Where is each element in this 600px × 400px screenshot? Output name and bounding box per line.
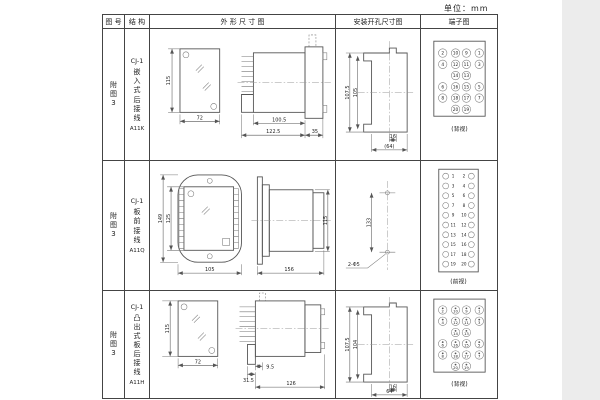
dim-label-flange-depth: 35 xyxy=(312,129,318,135)
svg-text:15: 15 xyxy=(450,242,456,247)
mount-type: 板 前 接 线 xyxy=(134,208,141,244)
svg-text:5: 5 xyxy=(478,84,481,90)
svg-text:2: 2 xyxy=(441,51,444,57)
dim-label-cutout-outer: 107.5 xyxy=(345,337,351,351)
model-code: A11H xyxy=(130,380,145,386)
svg-text:3: 3 xyxy=(478,321,481,325)
svg-text:16: 16 xyxy=(453,84,459,90)
svg-text:6: 6 xyxy=(442,343,445,347)
terminal-view-caption: (前视) xyxy=(450,278,466,286)
svg-text:10: 10 xyxy=(453,310,458,314)
page-edge-margin xyxy=(562,0,600,400)
terminal-drawing-cell: 2109141211314136161558181772019 (背视) xyxy=(421,291,498,399)
install-hole-drawing: 107.5 105 16 (64) xyxy=(336,29,420,160)
svg-text:20: 20 xyxy=(461,262,467,267)
svg-text:18: 18 xyxy=(453,355,458,359)
svg-text:20: 20 xyxy=(453,107,459,113)
model-code: A11Q xyxy=(129,248,144,254)
svg-text:2: 2 xyxy=(442,310,445,314)
svg-text:18: 18 xyxy=(453,96,459,102)
svg-text:4: 4 xyxy=(442,321,445,325)
table-row-a11q: 附 图 3 CJ-1 板 前 接 线 A11Q xyxy=(103,161,498,291)
svg-text:1: 1 xyxy=(478,310,481,314)
structure-cell: CJ-1 嵌 入 式 后 接 线 A11K xyxy=(125,29,150,161)
install-drawing-cell: 107.5 105 16 (64) xyxy=(336,29,421,161)
svg-text:19: 19 xyxy=(450,262,456,267)
dim-label-cutout-outer: 107.5 xyxy=(345,85,351,99)
outline-drawing: 115 72 9.5 xyxy=(150,291,335,398)
svg-text:11: 11 xyxy=(464,321,469,325)
svg-text:15: 15 xyxy=(464,343,469,347)
dim-label-front-width: 105 xyxy=(205,267,214,273)
model-code: A11K xyxy=(130,126,144,132)
svg-text:19: 19 xyxy=(464,107,470,113)
dim-label-inner-height: 125 xyxy=(166,214,172,223)
dim-label-tab-width: 16 xyxy=(390,134,396,140)
document-page: 单位：mm 图 号 结 构 外 形 尺 寸 图 安装开孔尺寸图 端子图 附 图 … xyxy=(0,0,600,400)
mount-type: 嵌 入 式 后 接 线 xyxy=(134,68,141,123)
svg-text:9: 9 xyxy=(465,51,468,57)
svg-text:1: 1 xyxy=(478,51,481,57)
hole-spec-label: 2-Φ5 xyxy=(348,262,360,268)
svg-text:19: 19 xyxy=(464,366,469,370)
spec-table: 图 号 结 构 外 形 尺 寸 图 安装开孔尺寸图 端子图 附 图 3 CJ-1… xyxy=(102,14,498,399)
svg-text:16: 16 xyxy=(453,343,458,347)
dim-label-hole-spacing: 133 xyxy=(367,218,373,227)
svg-text:6: 6 xyxy=(463,193,466,198)
header-outline-dims: 外 形 尺 寸 图 xyxy=(150,15,336,29)
dim-label-front-width: 72 xyxy=(197,115,203,121)
outline-drawing-cell: 115 72 9.5 xyxy=(150,291,336,399)
fig-no-cell: 附 图 3 xyxy=(103,161,125,291)
dim-label-cutout-inner: 105 xyxy=(353,88,359,97)
header-terminal-diagram: 端子图 xyxy=(421,15,498,29)
svg-text:8: 8 xyxy=(441,96,444,102)
svg-text:12: 12 xyxy=(453,321,458,325)
structure-cell: CJ-1 凸 出 式 板 后 接 线 A11H xyxy=(125,291,150,399)
svg-text:12: 12 xyxy=(461,222,467,227)
terminal-diagram: 2109141211314136161558181772019 (背视) xyxy=(421,29,497,160)
svg-text:11: 11 xyxy=(450,222,456,227)
svg-text:10: 10 xyxy=(461,213,467,218)
terminal-view-caption: (背视) xyxy=(451,125,467,133)
svg-text:17: 17 xyxy=(464,96,470,102)
install-drawing-cell: 133 2-Φ5 xyxy=(336,161,421,291)
dim-label-case-length: 100.5 xyxy=(272,117,286,123)
svg-text:4: 4 xyxy=(463,183,466,188)
outline-drawing-cell: 149 125 105 xyxy=(150,161,336,291)
terminal-diagram: 2109141211314136161558181772019 (背视) xyxy=(421,291,497,398)
svg-text:9: 9 xyxy=(452,213,455,218)
svg-text:1: 1 xyxy=(452,174,455,179)
table-row-a11k: 附 图 3 CJ-1 嵌 入 式 后 接 线 A11K 115 xyxy=(103,29,498,161)
header-fig-no: 图 号 xyxy=(103,15,125,29)
install-hole-drawing: 133 2-Φ5 xyxy=(336,161,420,290)
svg-text:4: 4 xyxy=(441,62,444,68)
header-install-holes: 安装开孔尺寸图 xyxy=(336,15,421,29)
dim-label-cutout-width: 64 xyxy=(386,389,392,395)
svg-text:14: 14 xyxy=(453,73,459,79)
dim-label-side-height: 115 xyxy=(323,216,329,225)
dim-label-flange-height: 149 xyxy=(158,214,164,223)
table-header-row: 图 号 结 构 外 形 尺 寸 图 安装开孔尺寸图 端子图 xyxy=(103,15,498,29)
svg-text:20: 20 xyxy=(453,366,458,370)
terminal-view-caption: (背视) xyxy=(451,380,467,388)
svg-text:3: 3 xyxy=(452,183,455,188)
outline-drawing: 149 125 105 xyxy=(150,161,335,290)
terminal-diagram: 1234567891011121314151617181920 (前视) xyxy=(421,161,497,290)
unit-label: 单位：mm xyxy=(444,3,489,14)
terminal-drawing-cell: 2109141211314136161558181772019 (背视) xyxy=(421,29,498,161)
relay-type: CJ-1 xyxy=(131,197,144,205)
svg-text:8: 8 xyxy=(463,203,466,208)
svg-text:16: 16 xyxy=(461,242,467,247)
dim-label-front-height: 115 xyxy=(166,76,172,85)
outline-drawing-cell: 115 72 100.5 xyxy=(150,29,336,161)
terminal-drawing-cell: 1234567891011121314151617181920 (前视) xyxy=(421,161,498,291)
svg-text:13: 13 xyxy=(464,332,469,336)
svg-text:12: 12 xyxy=(453,62,459,68)
structure-cell: CJ-1 板 前 接 线 A11Q xyxy=(125,161,150,291)
dim-label-front-height: 115 xyxy=(165,324,171,333)
outline-drawing: 115 72 100.5 xyxy=(150,29,335,160)
svg-text:3: 3 xyxy=(478,62,481,68)
relay-type: CJ-1 xyxy=(131,303,144,311)
svg-text:13: 13 xyxy=(450,232,456,237)
svg-text:14: 14 xyxy=(453,332,458,336)
dim-label-total-length: 122.5 xyxy=(266,129,280,135)
dim-label-front-width: 72 xyxy=(195,359,201,365)
svg-text:11: 11 xyxy=(464,62,470,68)
svg-text:14: 14 xyxy=(461,232,467,237)
svg-text:2: 2 xyxy=(463,174,466,179)
svg-text:7: 7 xyxy=(478,355,481,359)
svg-text:6: 6 xyxy=(441,84,444,90)
dim-label-cutout-inner: 104 xyxy=(353,340,359,349)
dim-label-side-length: 156 xyxy=(284,267,293,273)
svg-text:10: 10 xyxy=(453,51,459,57)
svg-text:8: 8 xyxy=(442,355,445,359)
fig-no-cell: 附 图 3 xyxy=(103,291,125,399)
relay-type: CJ-1 xyxy=(131,57,144,65)
table-row-a11h: 附 图 3 CJ-1 凸 出 式 板 后 接 线 A11H 115 xyxy=(103,291,498,399)
svg-text:5: 5 xyxy=(452,193,455,198)
svg-text:15: 15 xyxy=(464,84,470,90)
svg-text:18: 18 xyxy=(461,252,467,257)
install-hole-drawing: 107.5 104 16 64 xyxy=(336,291,420,398)
dim-label-cutout-width: (64) xyxy=(384,144,394,150)
dim-label-total-length: 126 xyxy=(286,381,295,387)
svg-text:5: 5 xyxy=(478,343,481,347)
fig-no-cell: 附 图 3 xyxy=(103,29,125,161)
svg-text:13: 13 xyxy=(464,73,470,79)
svg-text:17: 17 xyxy=(450,252,456,257)
svg-text:7: 7 xyxy=(452,203,455,208)
svg-text:7: 7 xyxy=(478,96,481,102)
dim-label-pin-depth: 9.5 xyxy=(266,364,274,370)
svg-text:17: 17 xyxy=(464,355,469,359)
install-drawing-cell: 107.5 104 16 64 xyxy=(336,291,421,399)
dim-label-stem-depth: 31.5 xyxy=(243,378,254,384)
svg-text:9: 9 xyxy=(465,310,468,314)
mount-type: 凸 出 式 板 后 接 线 xyxy=(134,314,141,378)
header-structure: 结 构 xyxy=(125,15,150,29)
